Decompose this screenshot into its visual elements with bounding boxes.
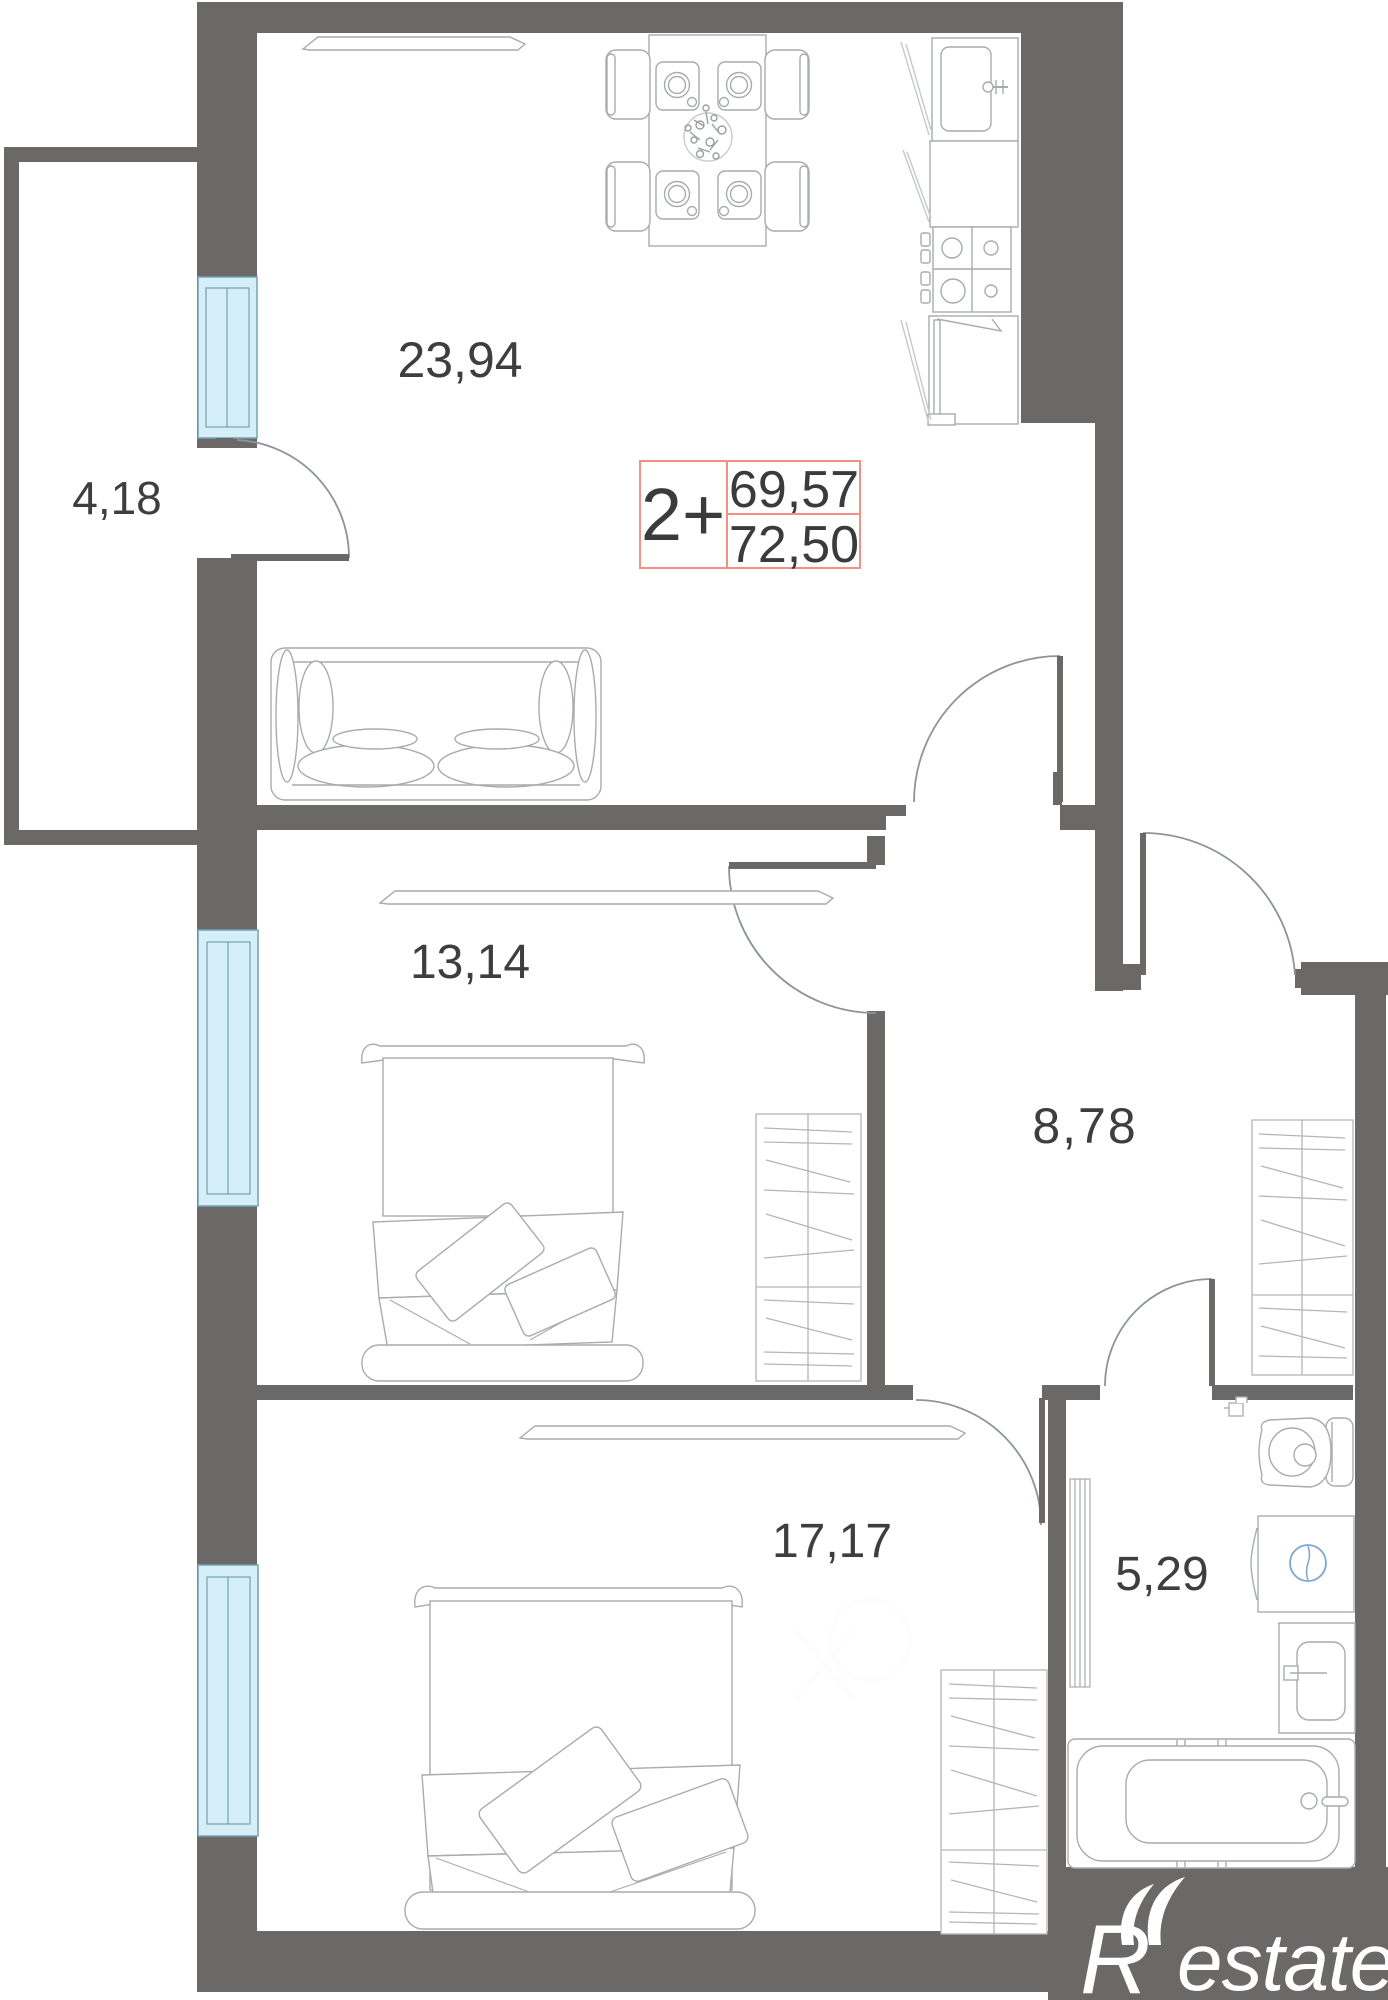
svg-text:4,18: 4,18 — [72, 472, 162, 524]
svg-text:13,14: 13,14 — [410, 936, 530, 989]
svg-text:8,78: 8,78 — [1032, 1098, 1137, 1154]
svg-text:2+: 2+ — [641, 473, 725, 556]
svg-text:5,29: 5,29 — [1115, 1548, 1208, 1601]
svg-text:R: R — [1080, 1904, 1149, 2000]
svg-text:69,57: 69,57 — [729, 461, 859, 519]
svg-text:72,50: 72,50 — [729, 516, 859, 574]
svg-text:23,94: 23,94 — [397, 332, 522, 388]
svg-text:17,17: 17,17 — [772, 1515, 892, 1568]
svg-text:estate: estate — [1177, 1917, 1388, 2000]
